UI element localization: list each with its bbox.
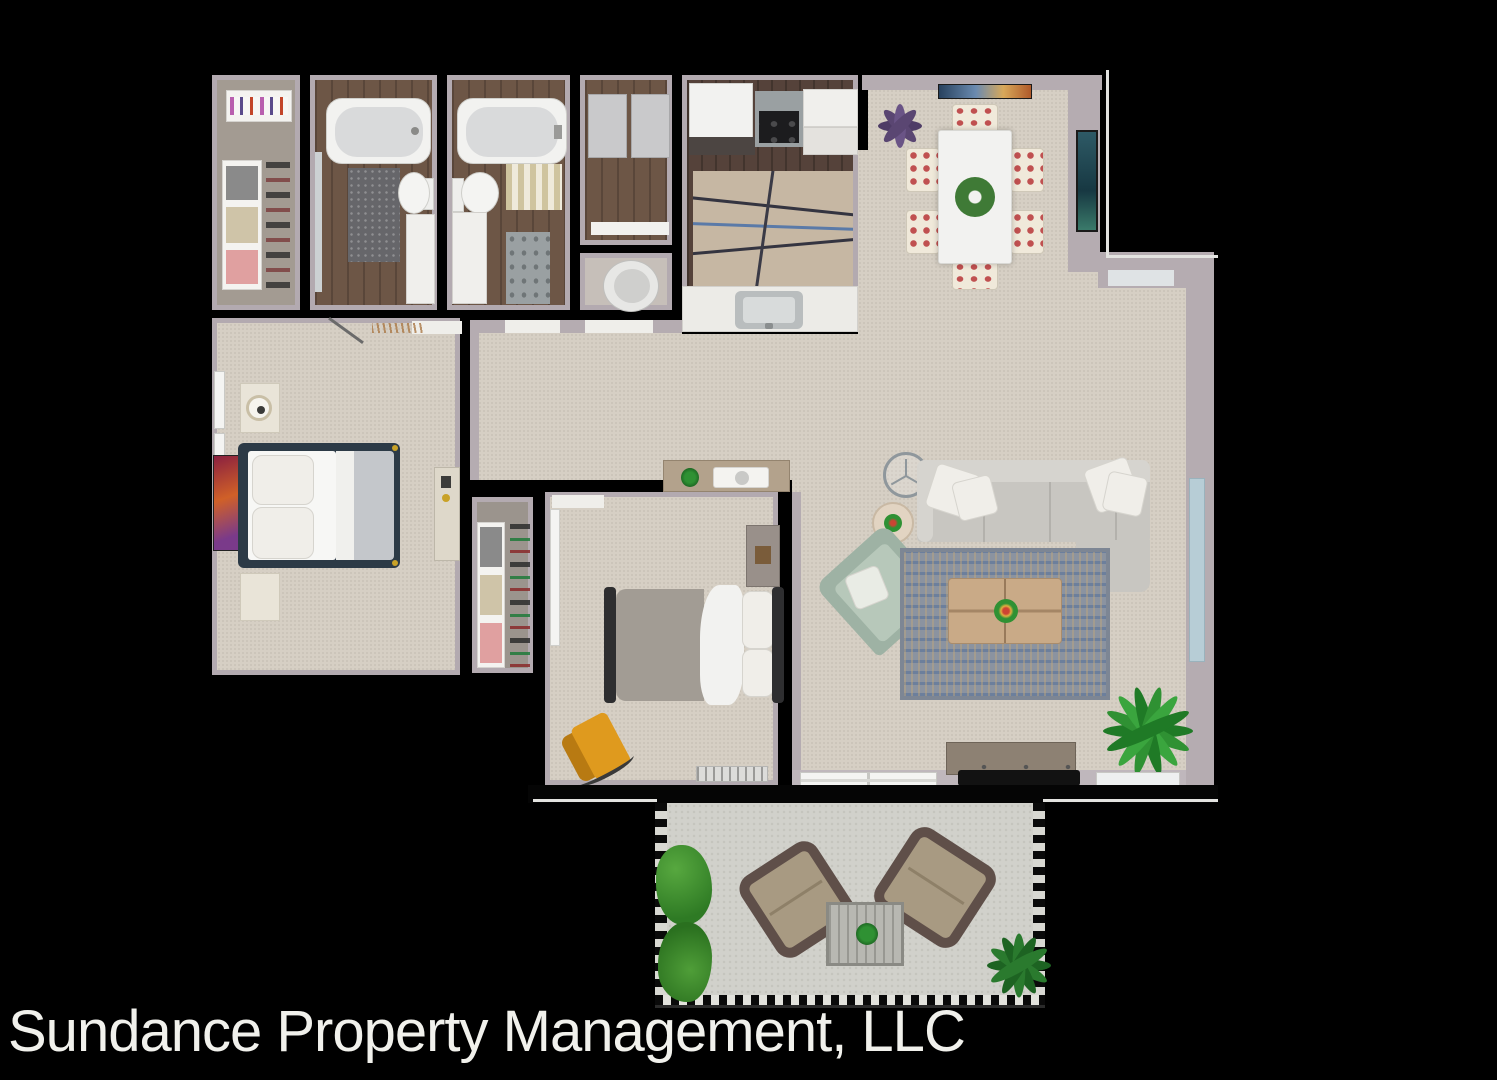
bed2-duvet bbox=[616, 589, 704, 701]
dresser-decor-gold bbox=[442, 494, 450, 502]
lower-cabinet bbox=[803, 127, 858, 155]
dining-chair-left-1 bbox=[906, 148, 940, 192]
patio-hedge-lower bbox=[658, 922, 712, 1002]
lamp-spoke-1 bbox=[905, 459, 907, 476]
bedroom1-closet bbox=[472, 497, 533, 673]
upper-cabinet bbox=[803, 89, 858, 127]
closet2-clothes-tan bbox=[480, 575, 502, 615]
bed2-footboard bbox=[604, 587, 616, 703]
bathroom-2 bbox=[447, 75, 570, 310]
nightstand bbox=[240, 383, 280, 433]
bathtub-basin bbox=[335, 107, 423, 157]
console-plant bbox=[681, 468, 699, 487]
wall-decor-script bbox=[372, 323, 424, 333]
bed1-sheet-fold bbox=[336, 451, 354, 560]
building-edge-line-vertical bbox=[1106, 70, 1109, 258]
bathtub bbox=[326, 98, 431, 164]
building-edge-line-horizontal bbox=[1106, 255, 1218, 258]
kitchen-sink bbox=[735, 291, 803, 329]
sink-basin bbox=[743, 297, 795, 323]
bathroom1-mirror bbox=[315, 152, 322, 292]
bathroom2-striped-rug bbox=[506, 164, 562, 210]
bathroom1-vanity bbox=[406, 214, 435, 304]
sink-faucet bbox=[765, 323, 773, 329]
dining-framed-picture bbox=[1076, 130, 1098, 232]
building-edge-line-bottom-left bbox=[533, 799, 657, 802]
folded-clothes-pink bbox=[226, 250, 258, 284]
kitchen bbox=[682, 75, 858, 332]
bathroom1-toilet bbox=[398, 172, 430, 214]
bedroom1-door-swing bbox=[328, 317, 364, 344]
bathroom-1 bbox=[310, 75, 437, 310]
closet-shoe-rack bbox=[266, 162, 290, 290]
rug-line-1 bbox=[693, 196, 853, 217]
linen-cabinet-1 bbox=[588, 94, 627, 158]
dining-chair-left-2 bbox=[906, 210, 940, 254]
bathroom2-mat bbox=[506, 232, 550, 304]
baseboard-heater bbox=[696, 766, 768, 782]
bathroom2-toilet bbox=[461, 172, 499, 214]
dresser2-box bbox=[755, 546, 771, 564]
rug-line-2 bbox=[693, 237, 853, 255]
bed2-headboard bbox=[772, 587, 784, 703]
bed2-pillow-2 bbox=[742, 649, 774, 697]
hall-left-wall bbox=[470, 333, 479, 480]
closet2-clothes-gray bbox=[480, 527, 502, 567]
bedroom2-orange-chair bbox=[556, 707, 637, 791]
dining-chair-right-1 bbox=[1010, 148, 1044, 192]
bedroom2-door-threshold bbox=[552, 495, 604, 508]
patio-table-plant bbox=[856, 923, 878, 945]
hanging-clothes bbox=[230, 97, 288, 115]
bed1-corner-knob-1 bbox=[392, 445, 398, 451]
step-wall-window bbox=[1108, 270, 1174, 286]
bathtub2-faucet bbox=[554, 125, 562, 139]
lamp-finial bbox=[257, 406, 265, 414]
watermark-text: Sundance Property Management, LLC bbox=[8, 998, 965, 1065]
living-floor-plant bbox=[1102, 686, 1194, 776]
seat-divider bbox=[1049, 482, 1051, 542]
linen-closet bbox=[580, 75, 672, 245]
bathroom1-rug bbox=[348, 168, 400, 262]
bathtub-2 bbox=[457, 98, 567, 164]
linen-shelf bbox=[591, 222, 669, 235]
bedroom-2 bbox=[545, 492, 778, 785]
rug-line-3 bbox=[693, 222, 853, 231]
bed1-corner-knob-2 bbox=[392, 560, 398, 566]
sink-counter bbox=[682, 286, 858, 332]
cooktop bbox=[759, 111, 799, 143]
closet2-clothes-pink bbox=[480, 623, 502, 663]
bedroom2-bed bbox=[604, 585, 786, 705]
living-left-wall bbox=[792, 492, 801, 772]
cube-side-table bbox=[240, 573, 280, 621]
dining-wall-art bbox=[938, 84, 1032, 99]
bedroom1-dresser bbox=[434, 467, 460, 561]
bedroom2-open-door bbox=[550, 509, 560, 646]
table-lamp bbox=[246, 395, 272, 421]
hall-bath2-threshold bbox=[505, 320, 560, 333]
coffee-table bbox=[948, 578, 1062, 644]
bedroom1-window-1 bbox=[214, 371, 225, 429]
floor-plan-canvas: Sundance Property Management, LLC bbox=[0, 0, 1497, 1080]
bedroom1-wall-art bbox=[213, 455, 239, 551]
closet-hanging-rod bbox=[226, 90, 292, 122]
closet-shelving-unit bbox=[222, 160, 262, 290]
coffee-table-centerpiece bbox=[994, 599, 1018, 623]
wreath-centerpiece bbox=[955, 177, 995, 217]
console-trays bbox=[713, 467, 769, 488]
bed1-pillow-1 bbox=[252, 455, 314, 505]
rug-line-4 bbox=[753, 171, 775, 289]
bed2-pillow-1 bbox=[742, 591, 774, 649]
console-table bbox=[663, 460, 790, 492]
bathroom2-vanity bbox=[452, 212, 487, 304]
bed1-duvet bbox=[354, 451, 394, 560]
wc-toilet bbox=[603, 260, 659, 312]
patio-potted-palm bbox=[986, 915, 1052, 1015]
lamp-spoke-3 bbox=[891, 475, 907, 485]
bed1-pillow-2 bbox=[252, 507, 314, 559]
folded-clothes-tan bbox=[226, 207, 258, 243]
folded-clothes-gray bbox=[226, 166, 258, 200]
linen-cabinet-2 bbox=[631, 94, 670, 158]
hall-wc-threshold bbox=[585, 320, 653, 333]
tv bbox=[958, 770, 1080, 786]
kitchen-rug bbox=[693, 171, 853, 289]
refrigerator bbox=[689, 83, 753, 139]
closet2-shelving bbox=[477, 522, 505, 668]
dining-chair-bottom bbox=[952, 260, 998, 290]
walk-in-closet bbox=[212, 75, 300, 310]
bathtub-drain bbox=[411, 127, 419, 135]
wc-toilet-seat bbox=[614, 269, 650, 303]
kitchen-counter-dark bbox=[689, 137, 755, 155]
bed2-sheet-drape bbox=[700, 585, 744, 705]
tray-bowl bbox=[735, 471, 749, 485]
closet2-shoe-strip bbox=[510, 524, 530, 668]
bedroom1-bed bbox=[238, 443, 400, 568]
bathtub2-basin bbox=[466, 107, 558, 157]
sofa-pillow-4 bbox=[1101, 470, 1148, 517]
bedroom-1 bbox=[212, 318, 460, 675]
water-closet bbox=[580, 253, 672, 310]
dresser-decor-dark bbox=[441, 476, 451, 488]
living-right-window bbox=[1189, 478, 1205, 662]
patio-table bbox=[826, 902, 904, 966]
building-edge-line-bottom-right bbox=[1043, 799, 1218, 802]
dining-chair-right-2 bbox=[1010, 210, 1044, 254]
bedroom2-dresser bbox=[746, 525, 780, 587]
